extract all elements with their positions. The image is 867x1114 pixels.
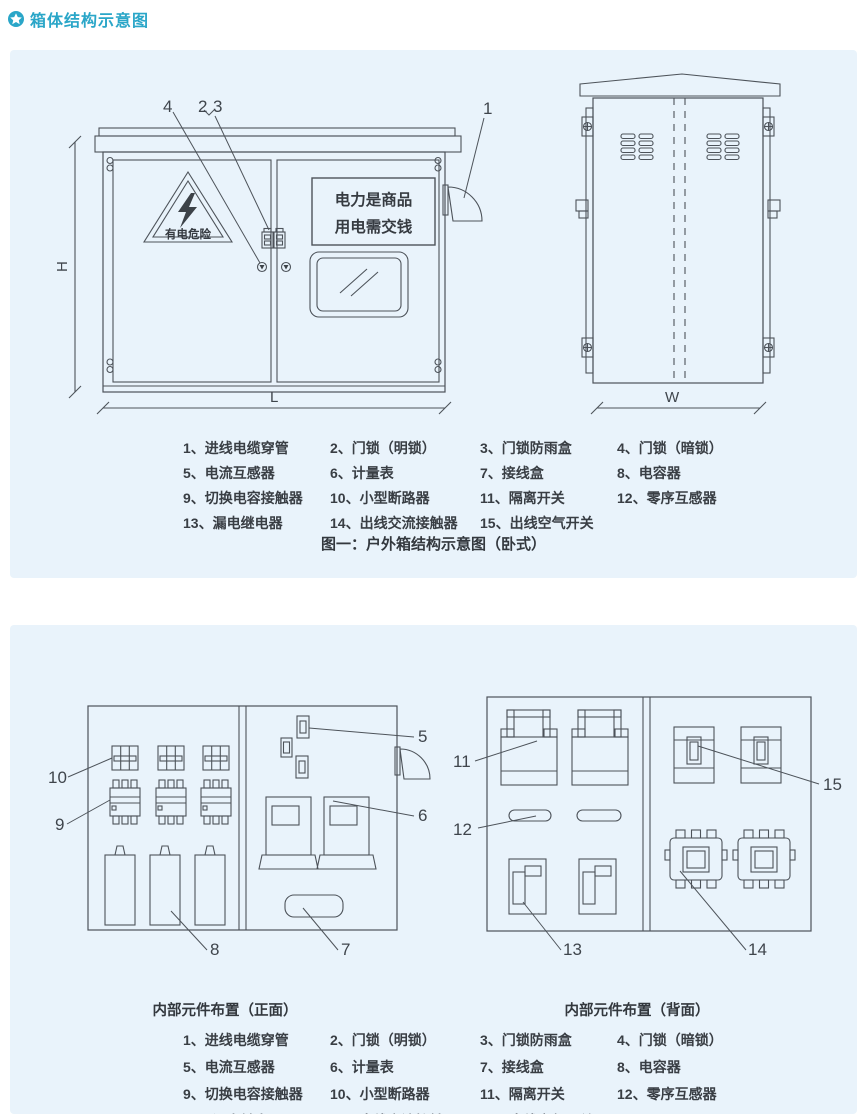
figure1-panel: 4 2 3 1 H L W 有电危险 电力是商品 用电需交钱 1、进线电缆穿管 … — [10, 50, 857, 578]
ac-contactor-icons — [665, 830, 795, 888]
junction-box-icon — [285, 895, 343, 917]
legend-item: 5、电流互感器 — [183, 1057, 330, 1077]
figure1-caption: 图一：户外箱结构示意图（卧式） — [10, 533, 857, 554]
hinge-bolt-icons — [582, 117, 774, 357]
hinge-icons — [107, 158, 441, 373]
legend-item: 5、电流互感器 — [183, 463, 330, 483]
callout-11: 11 — [453, 752, 471, 771]
sign-line1: 电力是商品 — [335, 190, 413, 209]
legend-item: 6、计量表 — [330, 1057, 480, 1077]
figure1-legend: 1、进线电缆穿管 2、门锁（明锁） 3、门锁防雨盒 4、门锁（暗锁） 5、电流互… — [183, 438, 723, 533]
figure2-legend: 1、进线电缆穿管 2、门锁（明锁） 3、门锁防雨盒 4、门锁（暗锁） 5、电流互… — [183, 1030, 723, 1114]
legend-item: 9、切换电容接触器 — [183, 1084, 330, 1104]
legend-item: 10、小型断路器 — [330, 1084, 480, 1104]
legend-item: 7、接线盒 — [480, 1057, 617, 1077]
back-layout — [487, 697, 811, 931]
meter-icons — [259, 797, 376, 869]
callout-10: 10 — [48, 768, 67, 787]
capacitor-contactor-icons — [110, 780, 231, 824]
door-lock-icons — [258, 263, 291, 272]
callout-1: 1 — [483, 99, 492, 118]
legend-item: 8、电容器 — [617, 463, 723, 483]
dim-h-label: H — [54, 261, 71, 272]
figure2-drawing: 10 9 8 7 5 6 11 12 13 14 15 — [10, 625, 857, 985]
figure2-caption-back: 内部元件布置（背面） — [517, 999, 757, 1020]
legend-item: 9、切换电容接触器 — [183, 488, 330, 508]
leakage-relay-icons — [509, 859, 616, 914]
callout-13: 13 — [563, 940, 582, 959]
legend-item: 13、漏电继电器 — [183, 513, 330, 533]
dim-w-label: W — [665, 389, 680, 406]
callout-2: 2 — [198, 97, 207, 116]
legend-item: 1、进线电缆穿管 — [183, 1030, 330, 1050]
legend-item: 6、计量表 — [330, 463, 480, 483]
callout-6: 6 — [418, 806, 427, 825]
callout-14: 14 — [748, 940, 767, 959]
callout-12: 12 — [453, 820, 472, 839]
legend-item: 7、接线盒 — [480, 463, 617, 483]
legend-item: 12、零序互感器 — [617, 1084, 723, 1104]
callout-3: 3 — [213, 97, 222, 116]
legend-item: 11、隔离开关 — [480, 488, 617, 508]
page-header: 箱体结构示意图 — [8, 7, 149, 31]
cable-conduit — [395, 747, 430, 779]
legend-item: 8、电容器 — [617, 1057, 723, 1077]
mcb-icons — [112, 746, 229, 770]
current-transformer-icons — [281, 716, 309, 778]
page: 箱体结构示意图 — [0, 0, 867, 1114]
legend-item: 3、门锁防雨盒 — [480, 438, 617, 458]
inspection-window — [310, 252, 408, 317]
dim-l-label: L — [270, 389, 278, 406]
callout-9: 9 — [55, 815, 64, 834]
callout-15: 15 — [823, 775, 842, 794]
latch-icons — [576, 200, 780, 218]
leader-lines — [173, 110, 484, 263]
legend-item: 11、隔离开关 — [480, 1084, 617, 1104]
zero-sequence-ct-icons — [509, 810, 621, 821]
callout-4: 4 — [163, 97, 172, 116]
figure2-panel: 10 9 8 7 5 6 11 12 13 14 15 内部元件布置（正面） 内… — [10, 625, 857, 1114]
sign-line2: 用电需交钱 — [335, 217, 413, 236]
legend-item: 1、进线电缆穿管 — [183, 438, 330, 458]
callout-7: 7 — [341, 940, 350, 959]
callout-8: 8 — [210, 940, 219, 959]
star-badge-icon — [8, 11, 24, 27]
side-view — [576, 74, 780, 383]
callout-5: 5 — [418, 727, 427, 746]
legend-item: 4、门锁（暗锁） — [617, 438, 723, 458]
legend-item: 2、门锁（明锁） — [330, 1030, 480, 1050]
legend-item: 3、门锁防雨盒 — [480, 1030, 617, 1050]
front-view — [95, 128, 482, 392]
legend-item: 15、出线空气开关 — [480, 513, 617, 533]
vent-louvers — [621, 134, 739, 160]
legend-item: 10、小型断路器 — [330, 488, 480, 508]
legend-item: 12、零序互感器 — [617, 488, 723, 508]
warning-text: 有电危险 — [165, 227, 211, 241]
legend-item: 14、出线交流接触器 — [330, 513, 480, 533]
door-lock-rainbox — [262, 229, 285, 249]
legend-item: 2、门锁（明锁） — [330, 438, 480, 458]
legend-item: 4、门锁（暗锁） — [617, 1030, 723, 1050]
page-title: 箱体结构示意图 — [30, 7, 149, 31]
front-layout — [88, 706, 430, 930]
capacitor-icons — [105, 846, 225, 925]
figure2-caption-front: 内部元件布置（正面） — [105, 999, 345, 1020]
cable-conduit — [443, 185, 482, 221]
isolating-switch-icons — [501, 710, 628, 785]
